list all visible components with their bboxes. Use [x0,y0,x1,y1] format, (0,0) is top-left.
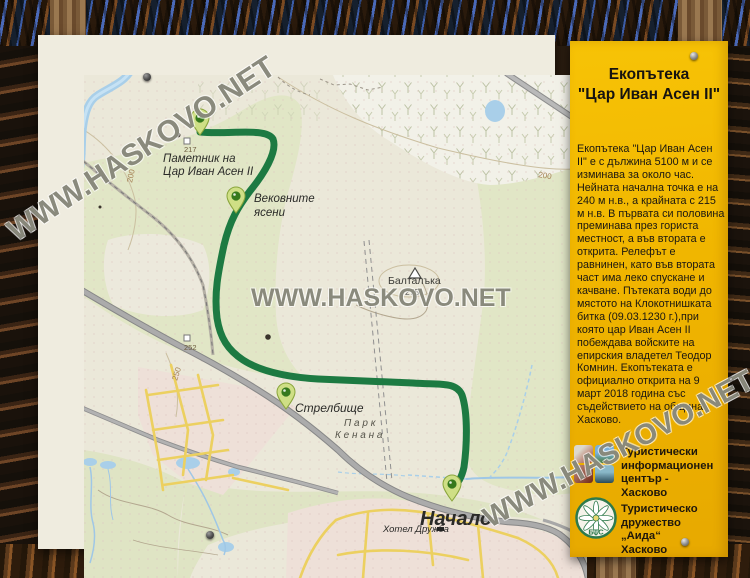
label-monument: Паметник на [163,153,236,165]
label-ashes: Вековните [254,193,315,205]
panel-description: Екопътека "Цар Иван Асен II" е с дължина… [577,143,725,427]
logo-photo-1 [574,445,593,463]
panel-title: Екопътека "Цар Иван Асен II" [570,65,728,105]
label-peak: Балталъка [388,275,441,287]
tourist-society-label: Туристическо дружество „Аида“ Хасково [621,503,698,557]
logo-photo-2 [595,445,614,463]
background-bark-left [0,0,40,578]
info-panel: Екопътека "Цар Иван Асен II" Екопътека "… [570,41,728,557]
tourist-society-row: БТС Туристическо дружество „Аида“ Хасков… [574,496,618,545]
label-elev-217: 217 [184,145,197,154]
screw-panel-top [690,52,698,60]
bts-logo-text: БТС [588,528,604,537]
screw-map-top [143,73,151,81]
screw-map-bottom [206,531,214,539]
tourist-info-center-row: Туристически информационен център - Хаск… [574,445,614,483]
label-park: П а р к [344,418,377,429]
photo-of-trail-sign: Паметник на Цар Иван Асен II Вековните я… [0,0,750,578]
label-elev-252: 252 [184,343,197,352]
label-shooting-range: Стрелбище [295,401,364,415]
label-hotel: Хотел Дружба [382,524,449,535]
wooden-post-top-left [50,0,86,40]
bts-edelweiss-logo: БТС [574,496,618,540]
label-peak-elevation: 275 [405,287,419,297]
svg-text:К е н а н а: К е н а н а [335,430,383,441]
trail-map: Паметник на Цар Иван Асен II Вековните я… [84,75,587,578]
map-board: Паметник на Цар Иван Асен II Вековните я… [38,35,555,549]
logo-photo-4 [595,465,614,483]
logo-photo-3 [574,465,593,483]
tourist-info-center-logo [574,445,614,483]
screw-panel-bottom [681,538,689,546]
panel-title-line2: "Цар Иван Асен II" [570,85,728,105]
panel-title-line1: Екопътека [570,65,728,85]
map-dot-texture [84,75,587,578]
svg-text:ясени: ясени [253,207,286,219]
svg-text:Цар Иван Асен II: Цар Иван Асен II [163,166,254,178]
tourist-info-center-label: Туристически информационен център - Хаск… [621,446,713,500]
